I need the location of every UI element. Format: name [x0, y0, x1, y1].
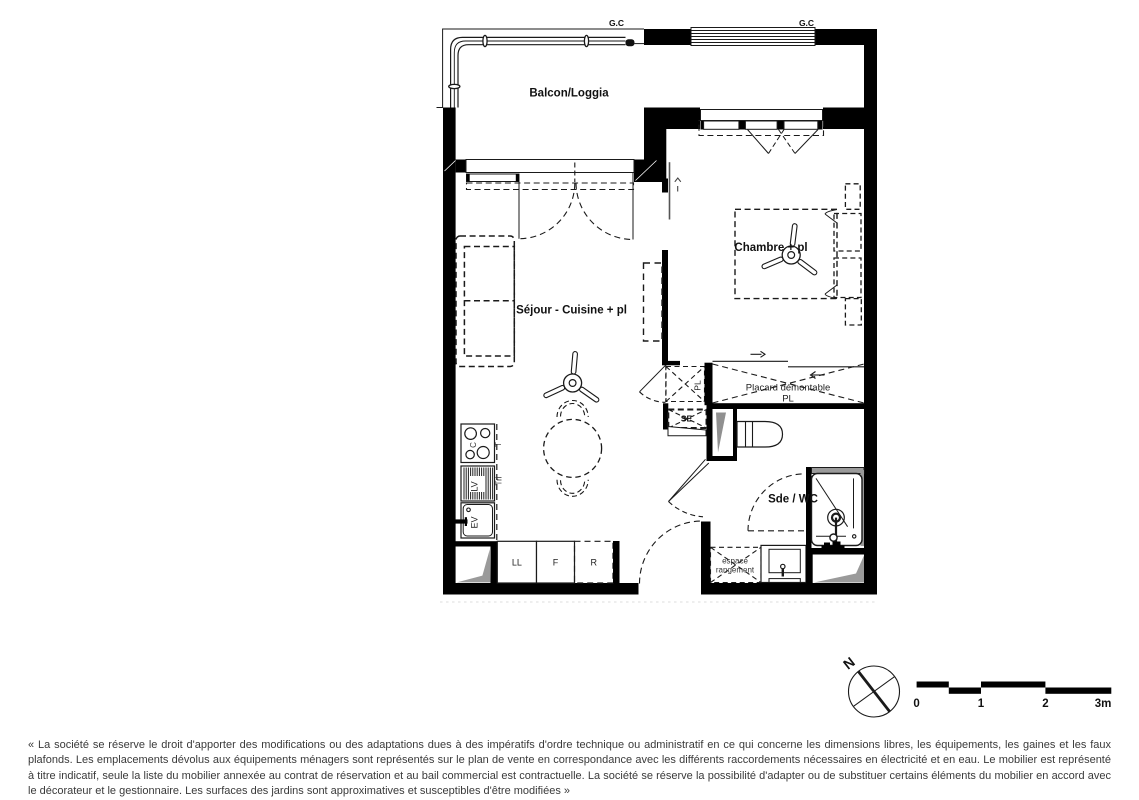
svg-text:Placard démontable: Placard démontable — [746, 383, 831, 394]
svg-text:F: F — [553, 558, 559, 568]
svg-text:T: T — [494, 442, 503, 447]
svg-text:LL: LL — [512, 558, 522, 568]
svg-text:Sde / WC: Sde / WC — [768, 494, 818, 506]
svg-text:2: 2 — [1042, 698, 1048, 710]
svg-text:Tri: Tri — [495, 476, 504, 485]
svg-text:SE: SE — [681, 414, 693, 424]
svg-text:Chambre + pl: Chambre + pl — [734, 242, 807, 254]
svg-text:PL: PL — [693, 380, 703, 391]
svg-text:LV: LV — [470, 481, 480, 491]
svg-text:PL: PL — [782, 394, 794, 405]
svg-text:G.C: G.C — [799, 18, 814, 28]
svg-text:rangement: rangement — [716, 566, 755, 575]
svg-text:1: 1 — [978, 698, 985, 710]
svg-text:R: R — [591, 558, 598, 568]
svg-text:C: C — [469, 442, 478, 448]
svg-text:espace: espace — [722, 557, 748, 566]
svg-text:Balcon/Loggia: Balcon/Loggia — [529, 88, 609, 100]
svg-text:3m: 3m — [1095, 698, 1112, 710]
svg-text:Séjour - Cuisine + pl: Séjour - Cuisine + pl — [516, 305, 627, 317]
svg-text:N: N — [840, 654, 858, 673]
svg-text:EV: EV — [470, 516, 480, 528]
svg-text:G.C: G.C — [609, 18, 624, 28]
svg-text:0: 0 — [913, 698, 919, 710]
